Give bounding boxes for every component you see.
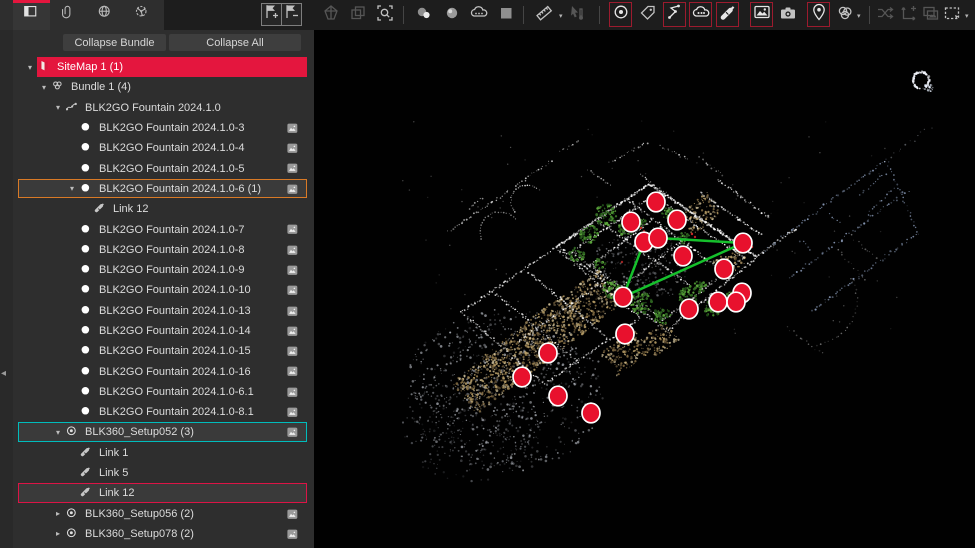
dropdown-caret-icon[interactable]: ▾ (559, 12, 563, 20)
tree-row[interactable]: BLK2GO Fountain 2024.1.0-5 (13, 158, 314, 178)
tree-item-label: BLK2GO Fountain 2024.1.0-13 (99, 305, 251, 317)
bundle-tool-button[interactable] (319, 2, 343, 28)
dot-icon (79, 324, 95, 339)
toolbar-separator (523, 6, 524, 24)
tree-row[interactable]: ▾BLK2GO Fountain 2024.1.0 (13, 98, 314, 118)
sphere-view-button[interactable] (440, 2, 464, 28)
tag-icon (638, 3, 658, 28)
tree-item-label: BLK2GO Fountain 2024.1.0 (85, 102, 221, 114)
tree-row[interactable]: ▸BLK360_Setup056 (2) (13, 504, 314, 524)
toolbar-separator (403, 6, 404, 24)
setup-marker[interactable] (614, 287, 632, 307)
dot-icon (79, 405, 95, 420)
tree-item-label: BLK2GO Fountain 2024.1.0-8.1 (99, 406, 254, 418)
cloud-bundle-icon (691, 2, 711, 27)
link-icon (93, 202, 109, 217)
dot-icon (79, 344, 95, 359)
screenshot-button[interactable] (776, 2, 800, 28)
scanpath-icon (65, 100, 81, 115)
dashed-rect-icon (942, 3, 962, 28)
toolbar-separator (869, 6, 870, 24)
setup-marker[interactable] (539, 343, 557, 363)
add-sitemap-button[interactable] (261, 3, 282, 26)
tree-item-label: BLK2GO Fountain 2024.1.0-4 (99, 142, 245, 154)
tree-row[interactable]: Link 5 (13, 463, 314, 483)
expand-arrow-icon[interactable]: ▾ (65, 184, 79, 193)
collapse-all-button[interactable]: Collapse All (169, 34, 301, 51)
location-pin-icon (809, 2, 829, 27)
move-axes-button[interactable] (897, 2, 921, 28)
tree-item-label: BLK2GO Fountain 2024.1.0-3 (99, 122, 245, 134)
cloud-display-button[interactable] (467, 2, 491, 28)
tree-item-label: Link 1 (99, 447, 128, 459)
knot-icon (835, 3, 855, 28)
network-icon (134, 4, 151, 26)
sphere-icon (442, 3, 462, 28)
dot-icon (79, 161, 95, 176)
setup-marker[interactable] (582, 403, 600, 423)
target-icon (65, 526, 81, 541)
dot-icon (79, 242, 95, 257)
globe-icon (97, 4, 114, 26)
expand-arrow-icon[interactable]: ▸ (51, 529, 65, 538)
main-toolbar: ▾▾▾ (0, 0, 975, 30)
dropdown-caret-icon[interactable]: ▾ (965, 12, 969, 20)
circle-dot-icon (611, 2, 631, 27)
tree-row[interactable]: ▾BLK360_Setup052 (3) (13, 422, 314, 442)
tree-item-label: Link 5 (99, 467, 128, 479)
tree-item-label: BLK2GO Fountain 2024.1.0-9 (99, 264, 245, 276)
image-thumb-icon[interactable] (287, 345, 301, 361)
image-thumb-icon[interactable] (287, 122, 301, 138)
tree-row[interactable]: BLK2GO Fountain 2024.1.0-15 (13, 341, 314, 361)
setup-marker[interactable] (674, 246, 692, 266)
axes-plus-icon (899, 3, 919, 28)
spheres-icon (414, 3, 434, 28)
tab-attachments[interactable] (50, 0, 87, 30)
show-links-button[interactable] (663, 2, 686, 27)
path-nodes-icon (665, 2, 685, 27)
setup-marker[interactable] (549, 386, 567, 406)
tree-row[interactable]: BLK2GO Fountain 2024.1.0-7 (13, 219, 314, 239)
tree-item-label: BLK2GO Fountain 2024.1.0-8 (99, 244, 245, 256)
panel-edge-strip: ◂ (0, 30, 13, 548)
selection-border (18, 483, 307, 502)
image-thumb-icon[interactable] (287, 386, 301, 402)
tree-item-label: BLK360_Setup078 (2) (85, 528, 194, 540)
dot-icon (79, 181, 95, 196)
tree-item-label: BLK2GO Fountain 2024.1.0-10 (99, 284, 251, 296)
link-icon (79, 445, 95, 460)
expand-arrow-icon[interactable]: ▾ (51, 428, 65, 437)
flag-plus-icon (262, 2, 282, 27)
toolbar-separator (599, 6, 600, 24)
dot-icon (79, 283, 95, 298)
shuffle-icon (875, 3, 895, 28)
expand-arrow-icon[interactable]: ▾ (23, 63, 37, 72)
create-link-button[interactable] (716, 2, 739, 27)
image-thumb-icon[interactable] (287, 284, 301, 300)
expand-arrow-icon[interactable]: ▸ (51, 509, 65, 518)
tree-item-label: BLK2GO Fountain 2024.1.0-6 (1) (99, 183, 261, 195)
setup-marker[interactable] (727, 292, 745, 312)
dot-icon (79, 384, 95, 399)
camera-icon (778, 3, 798, 28)
tab-project-explorer[interactable] (13, 0, 50, 30)
sitemap-icon (37, 60, 53, 75)
bundle-icon (51, 80, 67, 95)
tree-item-label: BLK2GO Fountain 2024.1.0-5 (99, 163, 245, 175)
project-tree-panel: Collapse Bundle Collapse All ▾SiteMap 1 … (13, 30, 314, 548)
tree-item-label: BLK2GO Fountain 2024.1.0-14 (99, 325, 251, 337)
setup-marker[interactable] (680, 299, 698, 319)
geotag-button[interactable] (807, 2, 830, 27)
tree-item-label: SiteMap 1 (1) (57, 61, 123, 73)
tree-row[interactable]: BLK2GO Fountain 2024.1.0-6.1 (13, 382, 314, 402)
dot-icon (79, 121, 95, 136)
image-thumb-icon[interactable] (287, 365, 301, 381)
panel-icon (23, 4, 40, 26)
dot-icon (79, 141, 95, 156)
image-icon (752, 2, 772, 27)
tree-row[interactable]: BLK2GO Fountain 2024.1.0-14 (13, 321, 314, 341)
link-icon (79, 466, 95, 481)
tree-item-label: BLK2GO Fountain 2024.1.0-16 (99, 366, 251, 378)
copy-view-button[interactable] (346, 2, 370, 28)
project-tree: ▾SiteMap 1 (1)▾Bundle 1 (4)▾BLK2GO Fount… (13, 57, 314, 548)
image-thumb-icon[interactable] (287, 223, 301, 239)
tree-item-label: BLK360_Setup052 (3) (85, 426, 194, 438)
tab-world[interactable] (87, 0, 124, 30)
image-thumb-icon[interactable] (287, 264, 301, 280)
pick-point-button[interactable] (565, 2, 589, 28)
image-thumb-icon[interactable] (287, 183, 301, 199)
collapse-bundle-button[interactable]: Collapse Bundle (63, 34, 166, 51)
setup-marker[interactable] (616, 324, 634, 344)
image-thumb-icon[interactable] (287, 325, 301, 341)
tree-item-label: BLK2GO Fountain 2024.1.0-15 (99, 345, 251, 357)
tree-item-label: BLK2GO Fountain 2024.1.0-6.1 (99, 386, 254, 398)
tree-item-label: Link 12 (99, 487, 134, 499)
target-icon (65, 425, 81, 440)
show-setups-button[interactable] (609, 2, 632, 27)
dropdown-caret-icon[interactable]: ▾ (857, 12, 861, 20)
swap-setups-button[interactable] (873, 2, 897, 28)
setup-marker[interactable] (513, 367, 531, 387)
setup-marker[interactable] (734, 233, 752, 253)
point-cloud-viewport[interactable] (314, 30, 975, 548)
show-images-button[interactable] (750, 2, 773, 27)
panel-tab-bar (0, 0, 164, 30)
collapse-panel-arrow-icon[interactable]: ◂ (1, 368, 6, 379)
image-thumb-icon[interactable] (287, 305, 301, 321)
auto-cloud-button[interactable] (833, 2, 857, 28)
zoom-region-icon (375, 3, 395, 28)
tree-row[interactable]: BLK2GO Fountain 2024.1.0-10 (13, 280, 314, 300)
tree-row[interactable]: BLK2GO Fountain 2024.1.0-4 (13, 138, 314, 158)
tree-row[interactable]: Link 1 (13, 443, 314, 463)
setup-marker[interactable] (709, 292, 727, 312)
image-thumb-icon[interactable] (287, 244, 301, 260)
remove-sitemap-button[interactable] (281, 3, 302, 26)
tree-row[interactable]: BLK2GO Fountain 2024.1.0-9 (13, 260, 314, 280)
ruler-icon (534, 3, 554, 28)
register-360-window: ▾▾▾ ◂ Collapse Bundle Collapse All ▾Site… (0, 0, 975, 548)
setup-marker[interactable] (668, 210, 686, 230)
tree-item-label: BLK360_Setup056 (2) (85, 508, 194, 520)
tree-item-label: BLK2GO Fountain 2024.1.0-7 (99, 224, 245, 236)
image-thumb-icon[interactable] (287, 162, 301, 178)
paperclip-icon (60, 4, 77, 26)
cursor-temp-icon (567, 3, 587, 28)
tree-item-label: Link 12 (113, 203, 148, 215)
tree-row[interactable]: BLK2GO Fountain 2024.1.0-16 (13, 361, 314, 381)
setup-marker[interactable] (647, 192, 665, 212)
tree-row[interactable]: BLK2GO Fountain 2024.1.0-13 (13, 301, 314, 321)
tree-row[interactable]: BLK2GO Fountain 2024.1.0-8.1 (13, 402, 314, 422)
flag-minus-icon (282, 2, 302, 27)
copy-icon (348, 3, 368, 28)
select-region-button[interactable] (940, 2, 964, 28)
image-thumb-icon[interactable] (287, 508, 301, 524)
image-thumb-icon[interactable] (287, 528, 301, 544)
dot-icon (79, 303, 95, 318)
dot-icon (79, 263, 95, 278)
expand-arrow-icon[interactable]: ▾ (37, 83, 51, 92)
tree-row[interactable]: ▾Bundle 1 (4) (13, 77, 314, 97)
tree-row[interactable]: ▾SiteMap 1 (1) (13, 57, 314, 77)
setup-marker[interactable] (649, 228, 667, 248)
tree-row[interactable]: BLK2GO Fountain 2024.1.0-8 (13, 240, 314, 260)
images-stack-icon (921, 3, 941, 28)
show-bundle-clouds-button[interactable] (689, 2, 712, 27)
point-size-button[interactable] (412, 2, 436, 28)
image-thumb-icon[interactable] (287, 426, 301, 442)
tag-button[interactable] (636, 2, 660, 28)
setup-marker[interactable] (715, 259, 733, 279)
image-thumb-icon[interactable] (287, 406, 301, 422)
target-icon (65, 506, 81, 521)
dot-icon (79, 364, 95, 379)
link-pencil-icon (718, 2, 738, 27)
square-icon (496, 3, 516, 28)
tree-row[interactable]: Link 12 (13, 483, 314, 503)
setup-marker[interactable] (622, 212, 640, 232)
dot-icon (79, 222, 95, 237)
link-icon (79, 486, 95, 501)
expand-arrow-icon[interactable]: ▾ (51, 103, 65, 112)
cloud-stack-icon (469, 3, 489, 28)
measure-button[interactable] (532, 2, 556, 28)
tree-row[interactable]: ▾BLK2GO Fountain 2024.1.0-6 (1) (13, 179, 314, 199)
tree-item-label: Bundle 1 (4) (71, 81, 131, 93)
tree-row[interactable]: ▸BLK360_Setup078 (2) (13, 524, 314, 544)
tab-network[interactable] (124, 0, 161, 30)
tree-row[interactable]: Link 12 (13, 199, 314, 219)
image-thumb-icon[interactable] (287, 142, 301, 158)
prism-icon (321, 3, 341, 28)
tree-row[interactable]: BLK2GO Fountain 2024.1.0-3 (13, 118, 314, 138)
zoom-region-button[interactable] (373, 2, 397, 28)
flat-shade-button[interactable] (494, 2, 518, 28)
